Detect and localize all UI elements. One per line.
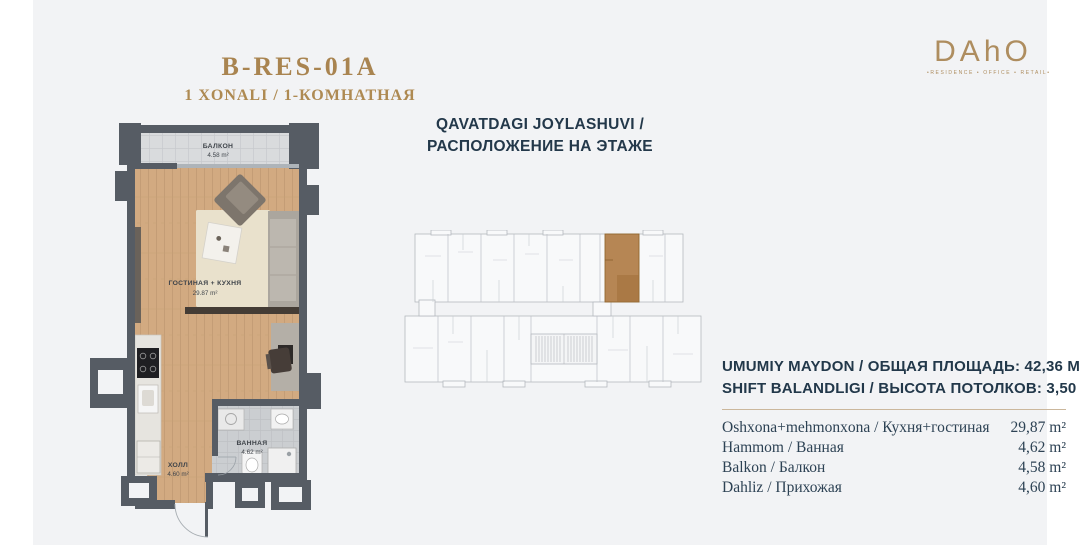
bathroom-area: 4.62 m² (241, 449, 262, 456)
room-area-table: Oshxona+mehmonxona / Кухня+гостиная 29,8… (722, 418, 1066, 498)
room-label: Hammom / Ванная (722, 438, 844, 458)
kitchen-counter (135, 335, 161, 475)
room-value: 4,60 m² (1018, 478, 1066, 498)
washing-machine (218, 409, 244, 430)
brand-logo-text: DAhO (927, 36, 1039, 68)
floor-location-line1: QAVATDAGI JOYLASHUVI / (415, 114, 665, 136)
room-label: Dahliz / Прихожая (722, 478, 842, 498)
apartment-floor-plan: БАЛКОН 4.58 m² ГОСТИНАЯ + КУХНЯ 29.87 m²… (85, 123, 325, 543)
hall-label: ХОЛЛ (168, 462, 188, 469)
balcony-area: 4.58 m² (207, 152, 228, 159)
hall-area: 4.60 m² (167, 471, 188, 478)
page-title: B-RES-01A (150, 52, 450, 82)
brand-logo: DAhO •RESIDENCE • OFFICE • RETAIL• (927, 36, 1039, 76)
tv-console (185, 307, 299, 314)
brand-logo-tagline: •RESIDENCE • OFFICE • RETAIL• (927, 70, 1039, 76)
balcony-window (177, 164, 299, 168)
floor-location-heading: QAVATDAGI JOYLASHUVI / РАСПОЛОЖЕНИЕ НА Э… (415, 114, 665, 158)
info-divider (722, 409, 1066, 410)
table-row: Balkon / Балкон 4,58 m² (722, 458, 1066, 478)
room-label: Oshxona+mehmonxona / Кухня+гостиная (722, 418, 989, 438)
room-value: 4,62 m² (1018, 438, 1066, 458)
highlighted-unit (605, 234, 639, 302)
balcony-label: БАЛКОН (203, 143, 234, 150)
table-row: Oshxona+mehmonxona / Кухня+гостиная 29,8… (722, 418, 1066, 438)
apartment-title-block: B-RES-01A 1 XONALI / 1-КОМНАТНАЯ (150, 52, 450, 105)
room-value: 29,87 m² (1011, 418, 1066, 438)
total-area-line: UMUMIY MAYDON / ОБЩАЯ ПЛОЩАДЬ: 42,36 М² (722, 356, 1066, 378)
ceiling-height-line: SHIFT BALANDLIGI / ВЫСОТА ПОТОЛКОВ: 3,50… (722, 378, 1066, 400)
room-label: Balkon / Балкон (722, 458, 825, 478)
top-wing (415, 234, 683, 302)
table-row: Dahliz / Прихожая 4,60 m² (722, 478, 1066, 498)
floor-location-line2: РАСПОЛОЖЕНИЕ НА ЭТАЖЕ (415, 136, 665, 158)
wardrobe (135, 227, 141, 323)
living-room-label: ГОСТИНАЯ + КУХНЯ (169, 280, 242, 287)
shower (268, 448, 296, 475)
area-info-block: UMUMIY MAYDON / ОБЩАЯ ПЛОЩАДЬ: 42,36 М² … (722, 356, 1066, 498)
bathroom-label: ВАННАЯ (237, 440, 268, 447)
page-subtitle: 1 XONALI / 1-КОМНАТНАЯ (150, 87, 450, 105)
living-room-area: 29.87 m² (193, 290, 218, 297)
entrance-door-arc (175, 504, 208, 537)
cooktop (137, 348, 159, 378)
stairwell (531, 334, 597, 364)
room-value: 4,58 m² (1018, 458, 1066, 478)
table-row: Hammom / Ванная 4,62 m² (722, 438, 1066, 458)
building-floor-schematic (403, 230, 705, 392)
sofa (268, 211, 299, 309)
coffee-table (202, 222, 242, 263)
